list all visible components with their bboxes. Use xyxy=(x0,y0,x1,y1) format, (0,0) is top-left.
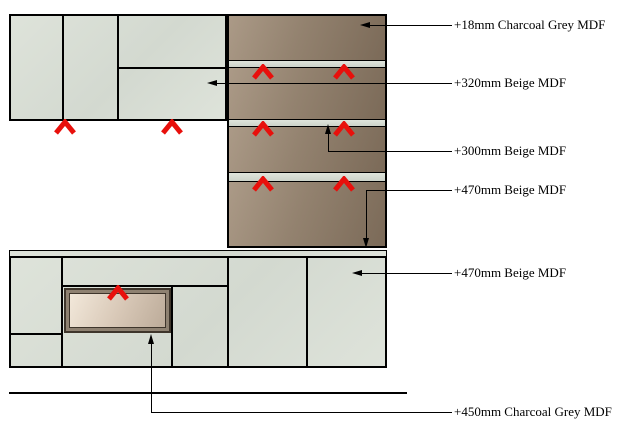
red-chevron-icon xyxy=(250,121,276,137)
callout-leader xyxy=(215,83,452,84)
mdf-elevation-diagram: +18mm Charcoal Grey MDF +320mm Beige MDF… xyxy=(0,0,619,423)
red-chevron-icon xyxy=(105,285,131,301)
callout-label: +300mm Beige MDF xyxy=(454,143,566,159)
callout-leader xyxy=(151,412,452,413)
lower-cabinet-drawer-line xyxy=(9,333,63,335)
arrow-down-icon xyxy=(363,238,369,248)
arrow-up-icon xyxy=(148,334,154,344)
lower-cabinet-divider-1 xyxy=(61,256,63,368)
red-chevron-icon xyxy=(331,176,357,192)
lower-cabinet-rail-line xyxy=(61,285,228,287)
upper-cabinet-divider-1 xyxy=(62,14,64,121)
lower-cabinet-divider-4 xyxy=(306,256,308,368)
callout-leader xyxy=(368,25,452,26)
callout-leader xyxy=(360,273,452,274)
floor-line xyxy=(9,392,407,394)
callout-leader xyxy=(151,344,152,412)
callout-label: +320mm Beige MDF xyxy=(454,75,566,91)
callout-leader xyxy=(366,190,452,191)
red-chevron-icon xyxy=(250,176,276,192)
callout-label: +18mm Charcoal Grey MDF xyxy=(454,17,605,33)
upper-cabinet-shelf-line xyxy=(117,67,227,69)
callout-leader xyxy=(328,133,329,151)
callout-label: +470mm Beige MDF xyxy=(454,265,566,281)
red-chevron-icon xyxy=(159,119,185,135)
callout-label: +450mm Charcoal Grey MDF xyxy=(454,404,612,420)
callout-leader xyxy=(328,151,452,152)
red-chevron-icon xyxy=(331,121,357,137)
lower-cabinet-divider-2 xyxy=(171,285,173,368)
callout-label: +470mm Beige MDF xyxy=(454,182,566,198)
red-chevron-icon xyxy=(250,64,276,80)
red-chevron-icon xyxy=(331,64,357,80)
callout-leader xyxy=(366,190,367,238)
red-chevron-icon xyxy=(52,119,78,135)
lower-cabinet-divider-3 xyxy=(227,256,229,368)
